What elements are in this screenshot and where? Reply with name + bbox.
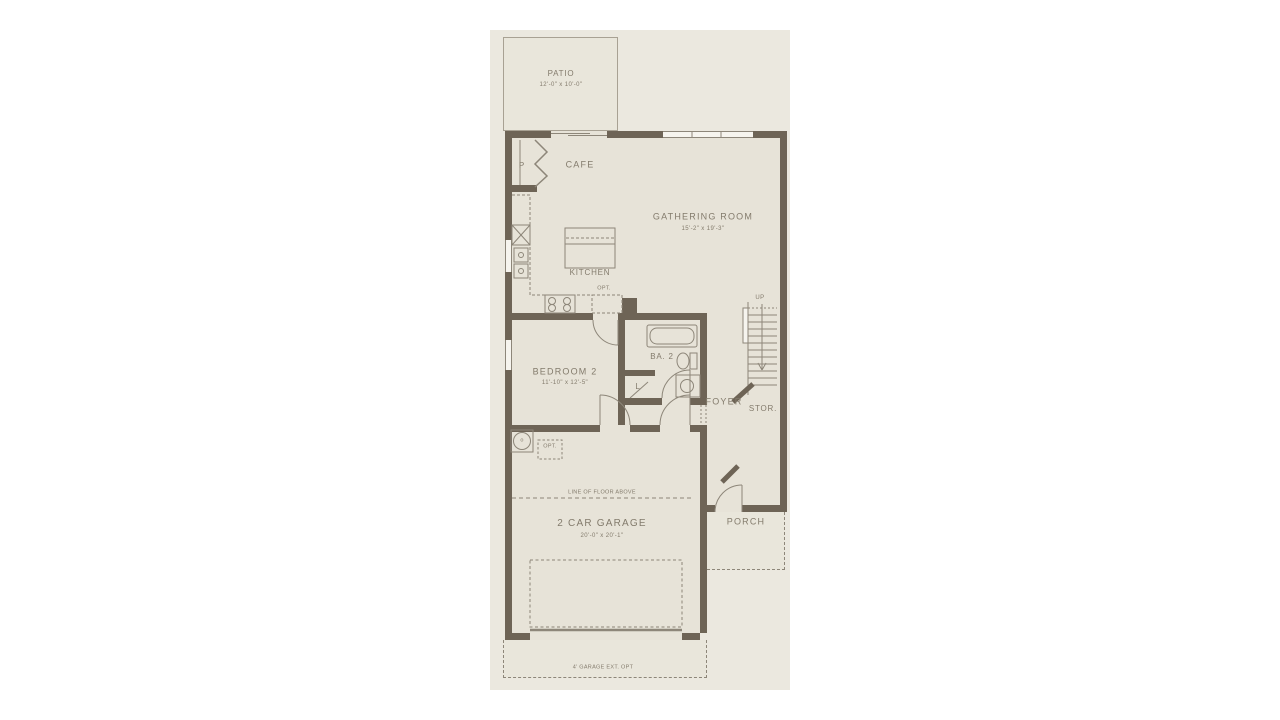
wall-bath-right [700, 313, 707, 405]
label-garage-dims: 20'-0" x 20'-1" [581, 533, 624, 539]
label-bedroom2: BEDROOM 2 [533, 368, 598, 377]
wall-porch-top [700, 505, 787, 512]
label-gathering-dims: 15'-2" x 19'-3" [682, 226, 725, 232]
gathering-window [663, 131, 753, 138]
label-patio-dims: 12'-0" x 10'-0" [540, 82, 583, 88]
garage-door-opening [530, 633, 682, 640]
wall-pantry-stub [523, 185, 537, 192]
patio-slider-opening [551, 131, 607, 138]
label-bedroom2-dims: 11'-10" x 12'-5" [542, 380, 588, 386]
label-patio: PATIO [548, 70, 575, 78]
label-porch: PORCH [727, 518, 766, 527]
label-linen: L [635, 383, 640, 391]
label-garage-ext: 4' GARAGE EXT. OPT [573, 665, 634, 671]
wall-left [505, 131, 512, 425]
wall-linen-top [618, 370, 655, 376]
wall-right [780, 131, 787, 512]
label-kitchen: KITCHEN [570, 269, 611, 277]
bath-door-opening [662, 398, 690, 405]
floorplan-page: PATIO 12'-0" x 10'-0" P CAFE GATHERING R… [0, 0, 1280, 720]
label-foyer: FOYER [705, 398, 742, 407]
floorplan-sheet: PATIO 12'-0" x 10'-0" P CAFE GATHERING R… [490, 30, 790, 690]
hall-door-opening-2 [660, 425, 690, 432]
label-gathering: GATHERING ROOM [653, 213, 753, 222]
bedroom-door-opening [593, 313, 618, 320]
bedroom-window [505, 340, 512, 370]
kitchen-window [505, 240, 512, 272]
label-pantry: P [519, 162, 525, 170]
hall-door-opening-1 [600, 425, 630, 432]
label-storage: STOR. [749, 405, 777, 413]
label-opt-kitchen: OPT. [597, 286, 610, 292]
label-bath2: BA. 2 [650, 353, 674, 361]
label-opt-garage: OPT. [543, 444, 556, 450]
foyer-area [707, 425, 780, 505]
label-cafe: CAFE [566, 161, 595, 170]
label-line-of-floor-above: LINE OF FLOOR ABOVE [568, 490, 636, 496]
label-garage: 2 CAR GARAGE [557, 519, 646, 529]
label-up: UP [755, 295, 764, 301]
wall-garage-left [505, 425, 512, 640]
water-heater-icon: o [520, 438, 523, 444]
garage-extension-area [503, 640, 707, 678]
front-door-opening [715, 505, 742, 512]
wall-garage-right [700, 425, 707, 633]
